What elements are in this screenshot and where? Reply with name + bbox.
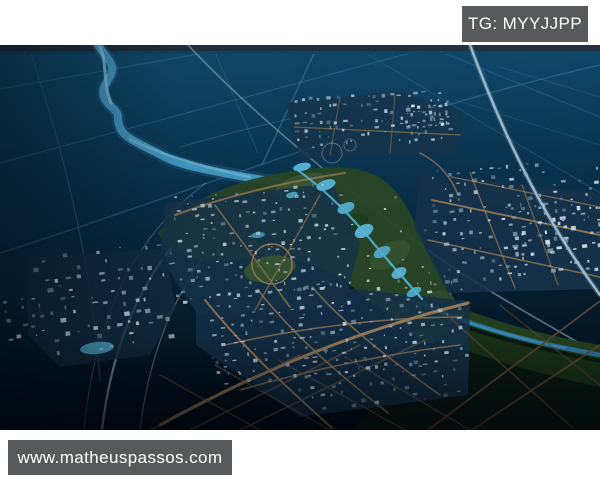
- website-watermark-badge: www.matheuspassos.com: [8, 440, 232, 475]
- telegram-watermark-badge: TG: MYYJJPP: [462, 6, 588, 42]
- page: TG: MYYJJPP www.matheuspassos.com: [0, 0, 600, 480]
- city-scene-svg: [0, 45, 600, 430]
- city-aerial-render: [0, 45, 600, 430]
- telegram-handle-text: TG: MYYJJPP: [468, 14, 582, 34]
- website-url-text: www.matheuspassos.com: [18, 448, 223, 468]
